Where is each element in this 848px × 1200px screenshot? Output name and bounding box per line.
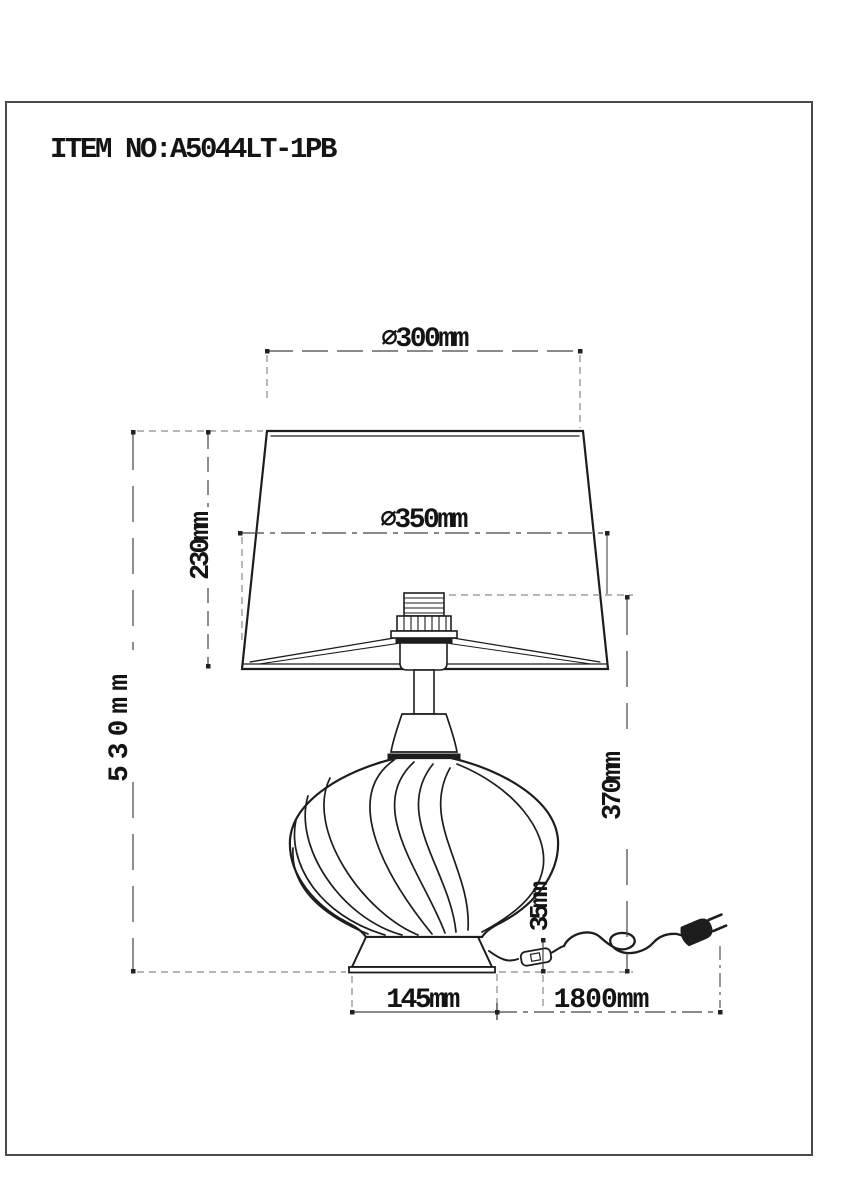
label-shade-top-diameter: ⌀300mm <box>381 324 469 355</box>
lamp-figure <box>242 431 728 973</box>
label-cord-length: 1800mm <box>554 985 649 1016</box>
drawing-sheet: ITEM NO:A5044LT-1PB <box>0 0 848 1200</box>
label-socket-height: 370mm <box>599 751 629 820</box>
lamp-foot <box>349 937 495 973</box>
lamp-body <box>290 758 558 937</box>
label-total-height: 530mm <box>105 668 136 782</box>
label-switch-height: 35mm <box>525 881 555 931</box>
label-base-width: 145mm <box>386 985 459 1016</box>
inline-switch <box>520 948 552 967</box>
shade-hub <box>400 643 447 670</box>
lamp-neck <box>388 714 460 759</box>
lamp-technical-drawing: ITEM NO:A5044LT-1PB <box>0 0 848 1200</box>
label-shade-height: 230mm <box>187 511 217 580</box>
item-number-label: ITEM NO:A5044LT-1PB <box>50 133 337 166</box>
cord-coil <box>564 932 684 953</box>
lamp-rod <box>414 670 434 714</box>
label-shade-bottom-diameter: ⌀350mm <box>380 505 468 536</box>
power-plug <box>678 911 727 947</box>
